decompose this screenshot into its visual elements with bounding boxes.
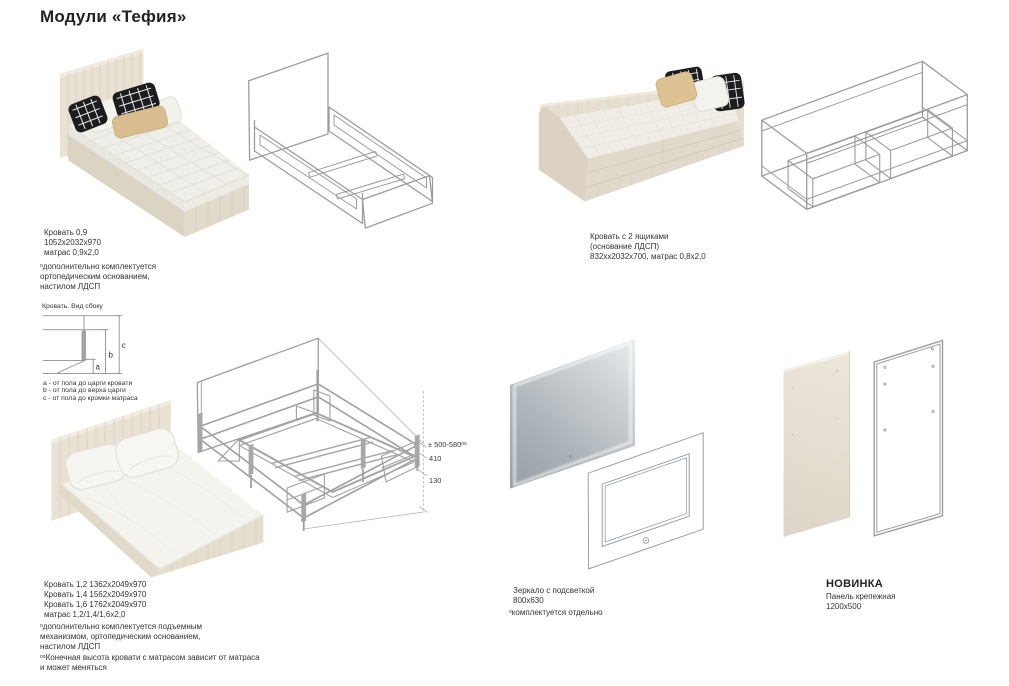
- svg-text:c: c: [122, 341, 126, 350]
- svg-text:a: a: [96, 363, 101, 372]
- svg-text:b: b: [109, 351, 114, 360]
